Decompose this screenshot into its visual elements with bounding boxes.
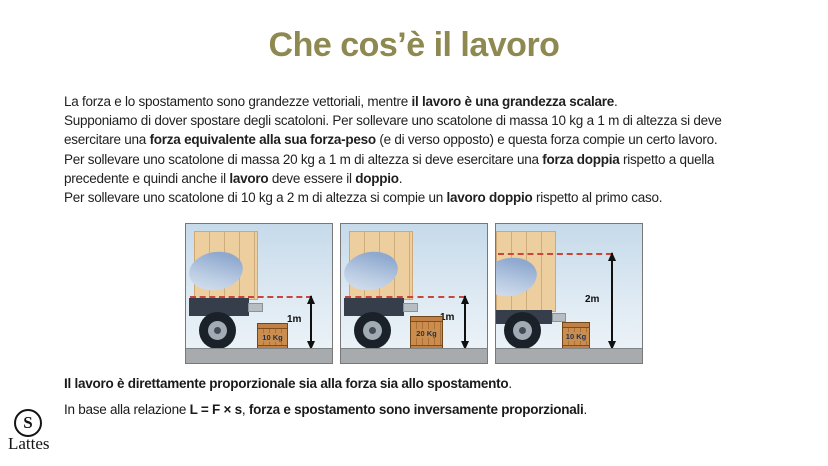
height-label: 1m (287, 314, 301, 325)
slide: Che cos’è il lavoro La forza e lo sposta… (0, 0, 828, 466)
page-title: Che cos’è il lavoro (0, 26, 828, 65)
truck-illustration-20kg-1m: 1m 20 Kg (340, 223, 488, 364)
truck-illustration-10kg-2m: 2m 10 Kg (495, 223, 643, 364)
dotted-height-line (190, 296, 312, 298)
lattes-logo-text: Lattes (8, 434, 50, 454)
truck-step (552, 313, 566, 322)
crate: 10 Kg (562, 322, 590, 351)
crate-label: 20 Kg (415, 329, 437, 338)
cargo-box (496, 231, 556, 312)
ground (496, 348, 642, 363)
crate: 10 Kg (257, 323, 288, 351)
truck-wheel (354, 312, 391, 349)
lattes-logo-icon: S (14, 409, 42, 437)
wheel-rim (513, 321, 532, 340)
crate: 20 Kg (410, 316, 443, 351)
truck-wheel (504, 312, 541, 349)
height-arrow (611, 253, 613, 349)
truck-step (403, 303, 418, 312)
dotted-height-line (345, 296, 465, 298)
drum-logo (186, 248, 246, 295)
wheel-hub (519, 327, 526, 334)
cargo-box (349, 231, 413, 300)
truck-wheel (199, 312, 236, 349)
wheel-rim (208, 321, 227, 340)
drum-logo (495, 254, 540, 301)
wheel-hub (214, 327, 221, 334)
lattes-logo-letter: S (23, 413, 32, 433)
wheel-rim (363, 321, 382, 340)
drum-logo (341, 248, 401, 295)
truck-illustration-10kg-1m: 1m 10 Kg (185, 223, 333, 364)
ground (341, 348, 487, 363)
wheel-hub (369, 327, 376, 334)
height-arrow (310, 296, 312, 349)
height-label: 2m (585, 294, 599, 305)
crate-label: 10 Kg (565, 332, 587, 341)
dotted-height-line (498, 253, 612, 255)
ground (186, 348, 332, 363)
conclusion-statements: Il lavoro è direttamente proporzionale s… (64, 374, 587, 426)
height-arrow (464, 296, 466, 349)
body-paragraph: La forza e lo spostamento sono grandezze… (64, 92, 722, 207)
crate-label: 10 Kg (261, 333, 283, 342)
cargo-box (194, 231, 258, 300)
truck-step (248, 303, 263, 312)
